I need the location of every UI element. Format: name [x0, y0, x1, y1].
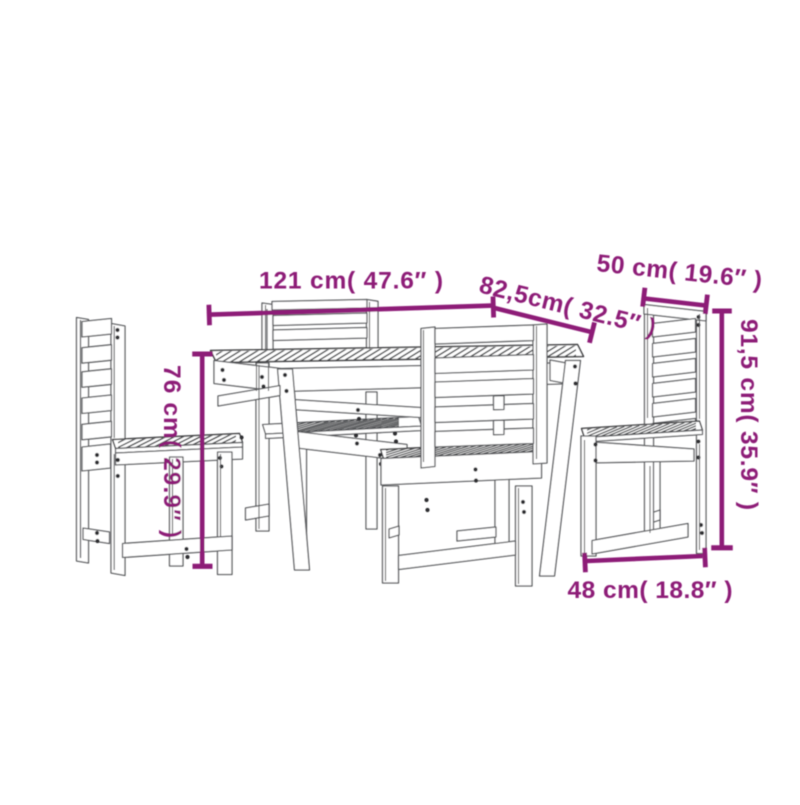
svg-text:91,5 cm( 35.9″ ): 91,5 cm( 35.9″ ) [735, 319, 762, 510]
svg-text:48 cm( 18.8″ ): 48 cm( 18.8″ ) [568, 577, 733, 604]
svg-text:121 cm( 47.6″ ): 121 cm( 47.6″ ) [259, 268, 443, 295]
svg-text:76 cm( 29.9″ ): 76 cm( 29.9″ ) [158, 365, 185, 538]
